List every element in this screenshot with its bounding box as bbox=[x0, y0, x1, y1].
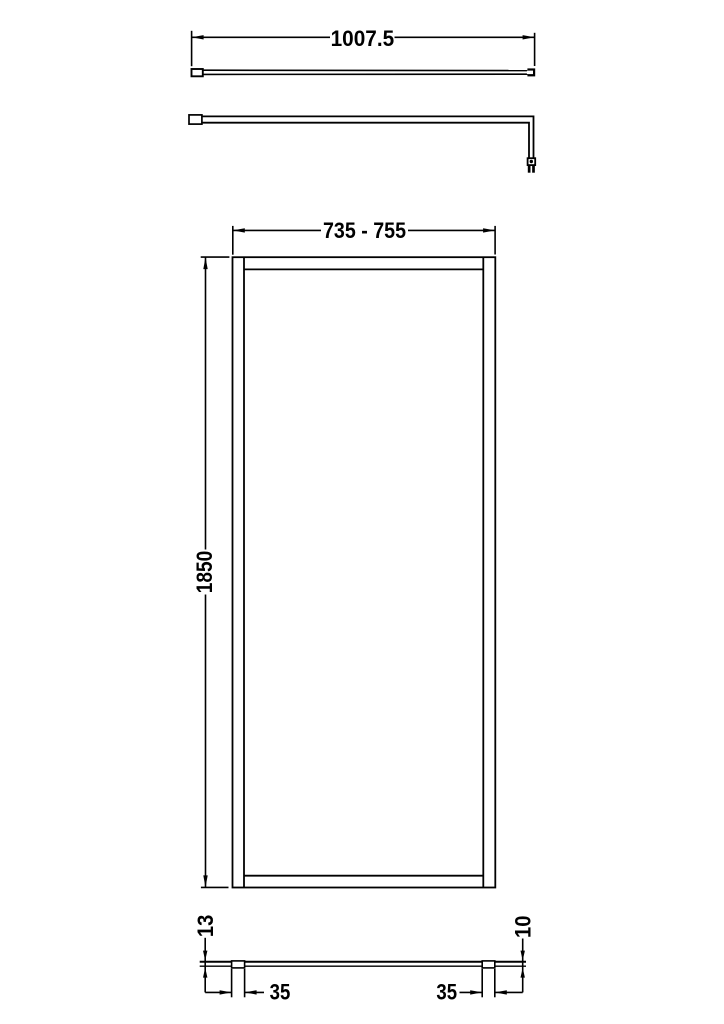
svg-text:10: 10 bbox=[511, 915, 536, 938]
svg-text:735 - 755: 735 - 755 bbox=[323, 218, 406, 243]
svg-text:1850: 1850 bbox=[192, 551, 217, 594]
svg-text:1007.5: 1007.5 bbox=[331, 26, 395, 51]
svg-text:35: 35 bbox=[436, 979, 457, 1004]
svg-text:13: 13 bbox=[193, 915, 218, 937]
svg-text:35: 35 bbox=[270, 979, 291, 1004]
